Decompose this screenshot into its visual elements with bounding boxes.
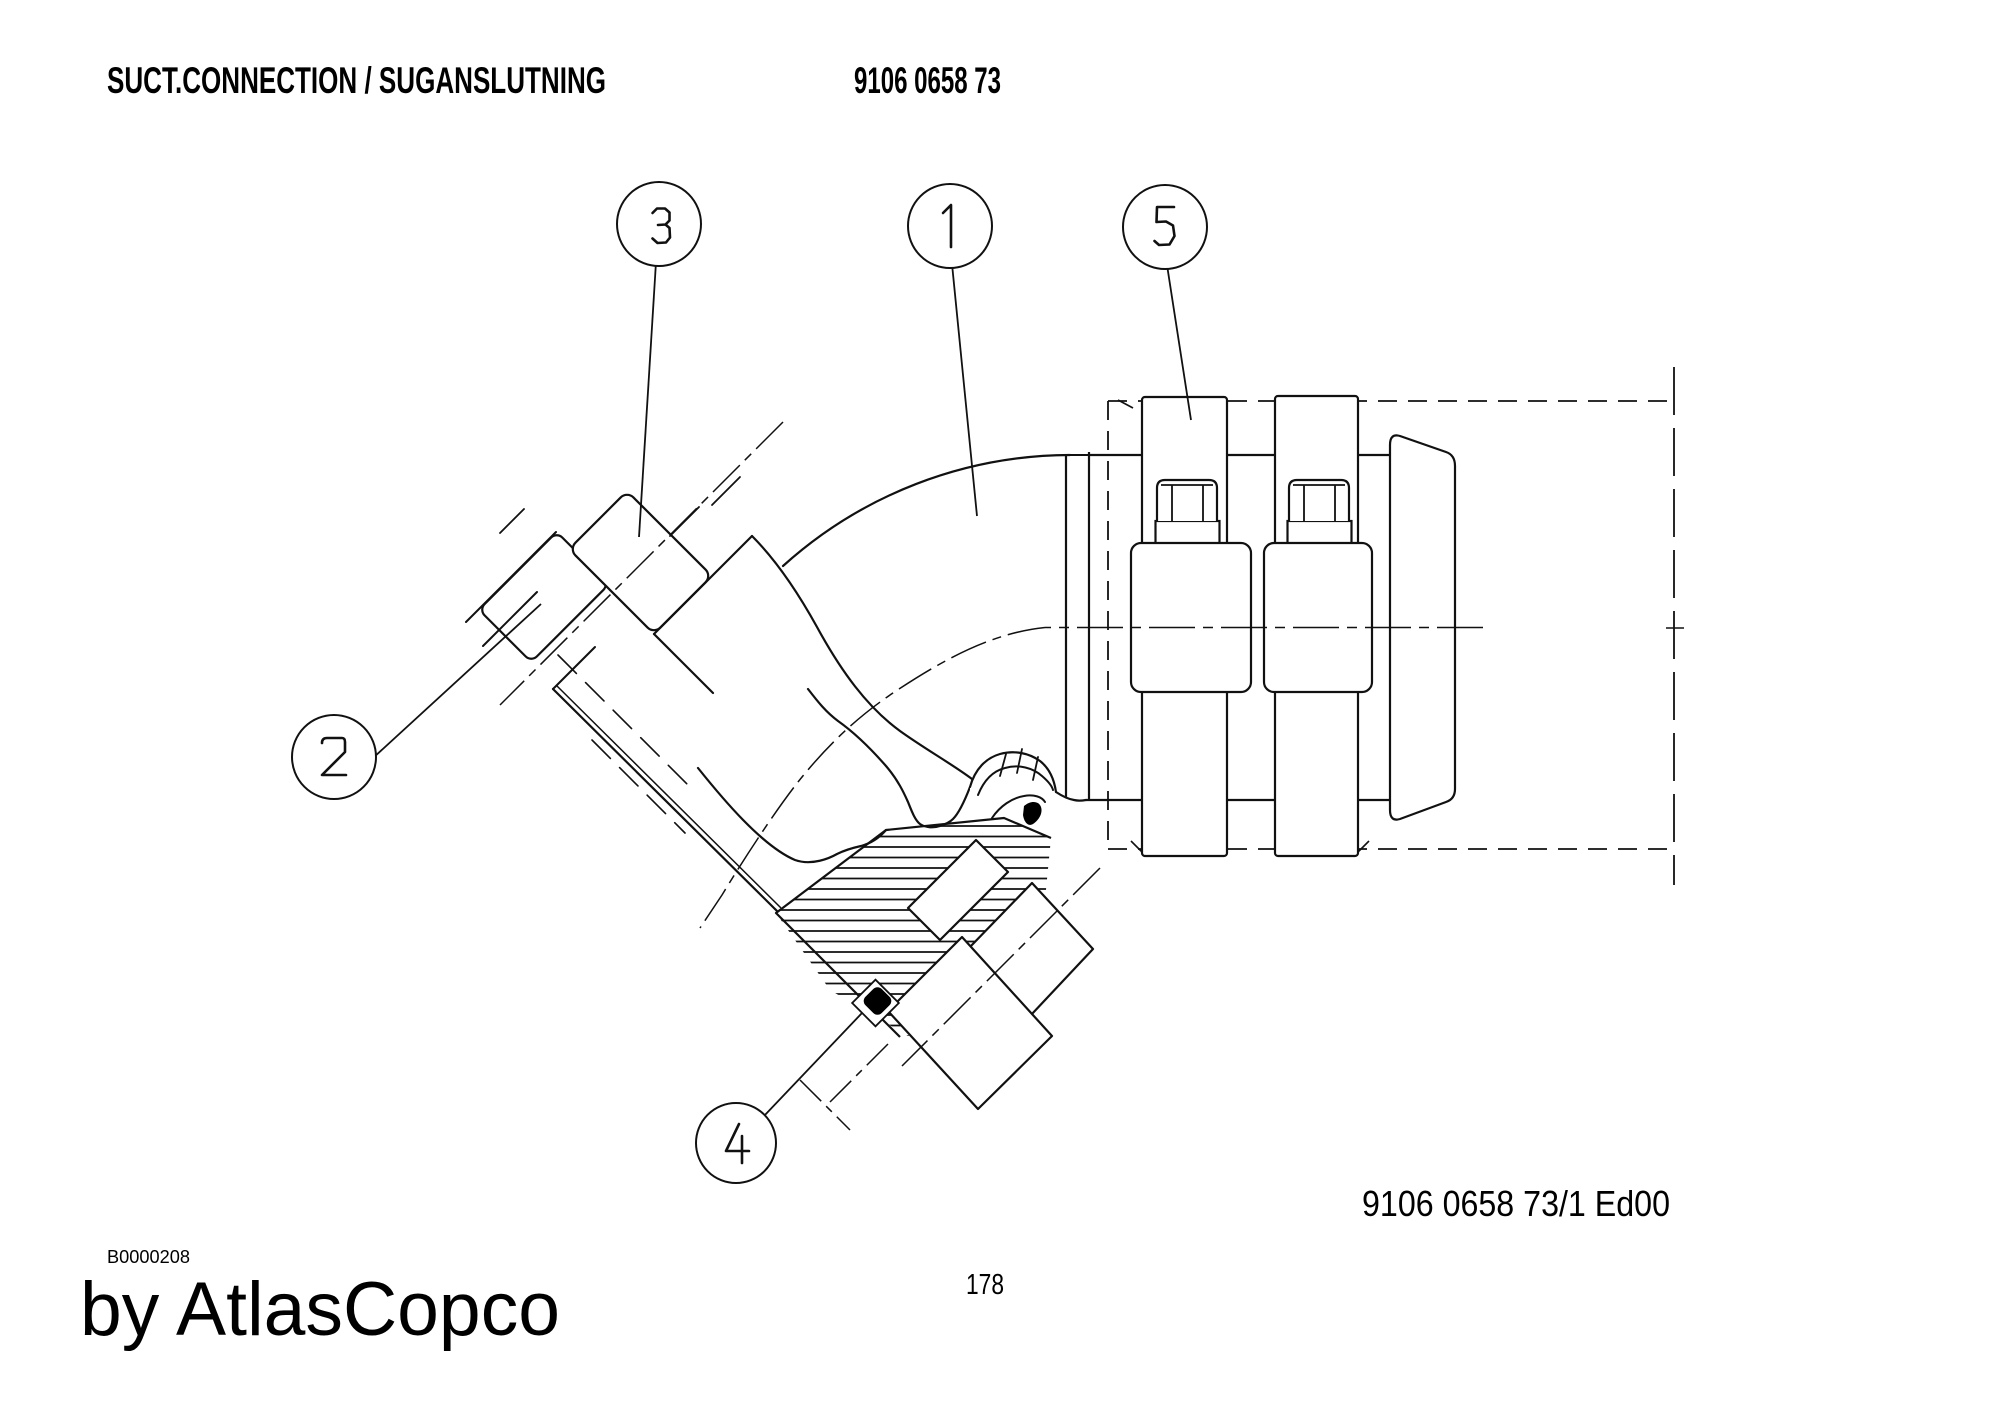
svg-text:B0000208: B0000208 bbox=[107, 1247, 190, 1267]
svg-text:9106 0658 73/1 Ed00: 9106 0658 73/1 Ed00 bbox=[1362, 1183, 1670, 1224]
svg-text:SUCT.CONNECTION / SUGANSLUTNIN: SUCT.CONNECTION / SUGANSLUTNING bbox=[107, 60, 606, 101]
svg-text:178: 178 bbox=[966, 1269, 1004, 1301]
svg-text:by AtlasCopco: by AtlasCopco bbox=[80, 1267, 560, 1352]
svg-text:9106 0658 73: 9106 0658 73 bbox=[854, 60, 1001, 101]
